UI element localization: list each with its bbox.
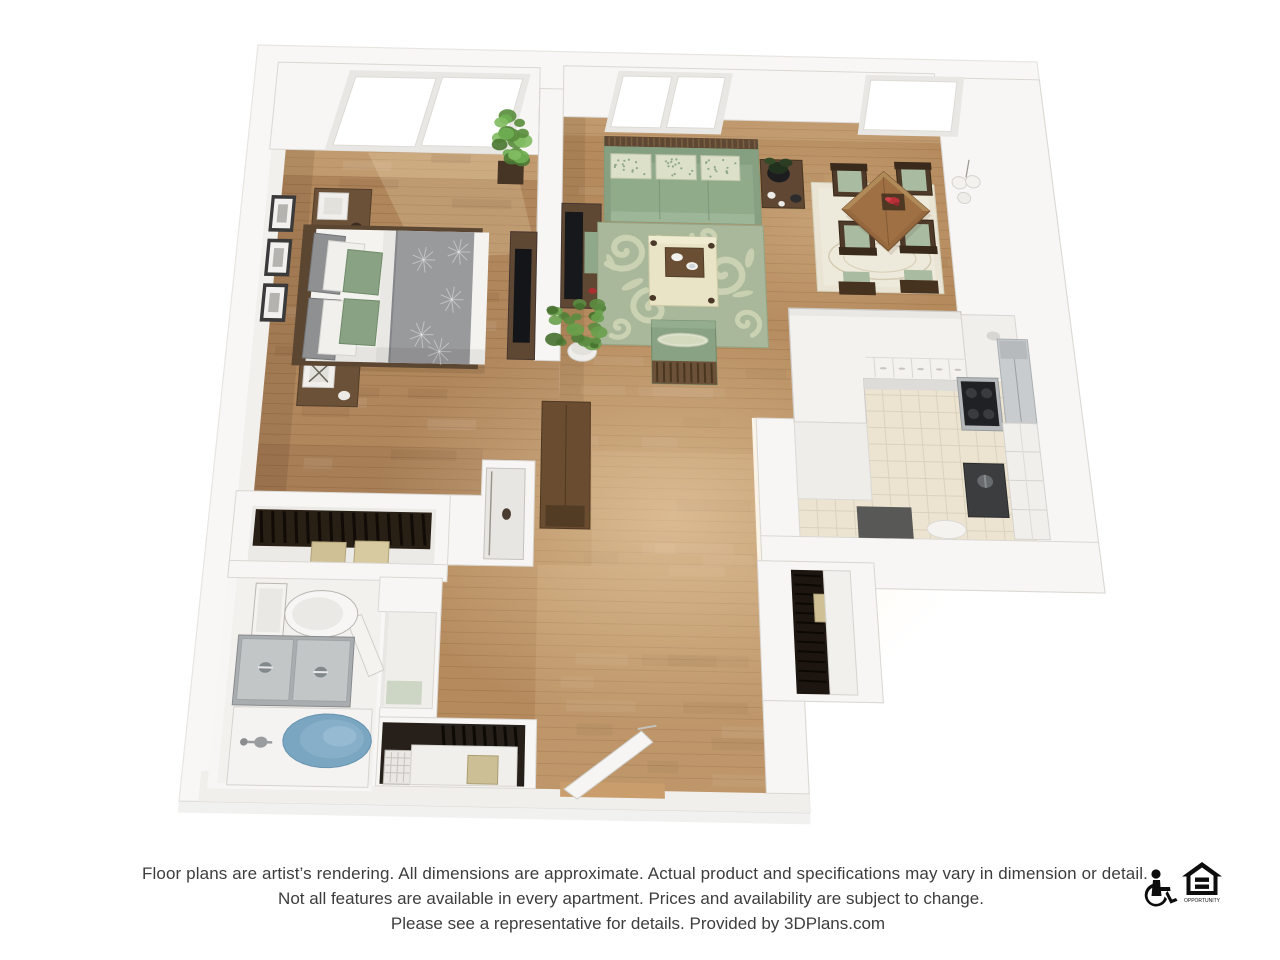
svg-text:Please see a representative fo: Please see a representative for details.…: [391, 914, 885, 933]
svg-text:Not all features are available: Not all features are available in every …: [278, 889, 984, 908]
svg-text:OPPORTUNITY: OPPORTUNITY: [1184, 898, 1221, 904]
svg-text:Floor plans are artist’s rende: Floor plans are artist’s rendering. All …: [142, 864, 1148, 883]
